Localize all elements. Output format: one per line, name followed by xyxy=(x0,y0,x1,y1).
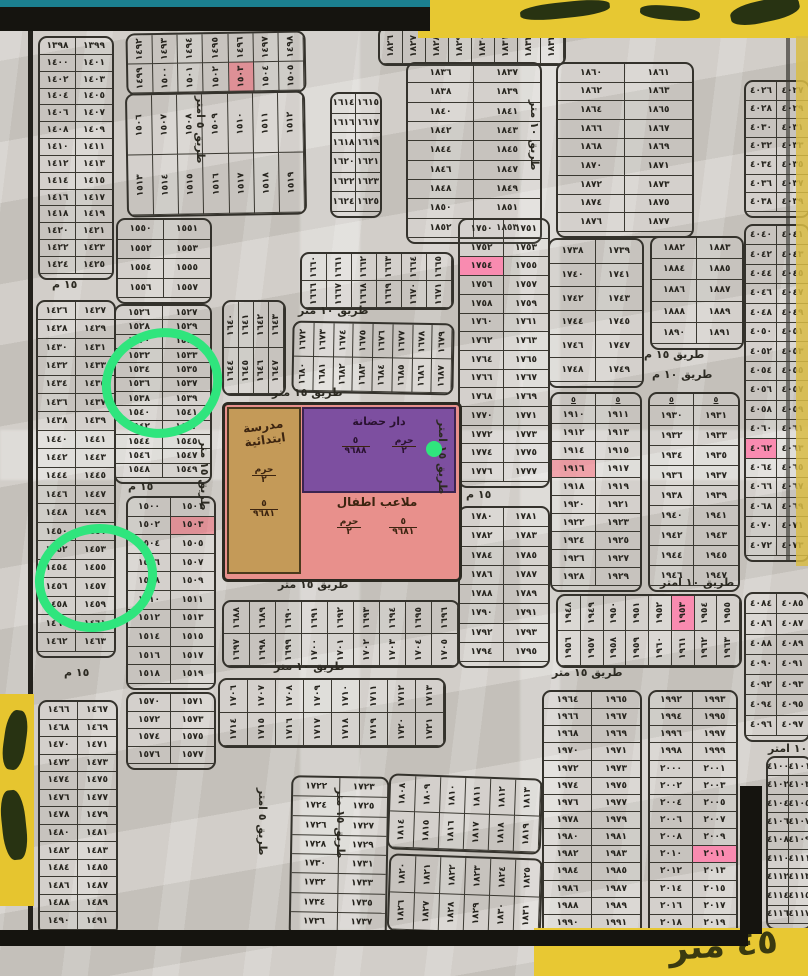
plot-cell: ٢٠١٠ xyxy=(650,846,693,863)
plot-block: ١٦٨٨١٦٨٩١٦٩٠١٦٩١١٦٩٢١٦٩٣١٦٩٤١٦٩٥١٦٩٦١٦٩٧… xyxy=(222,600,460,668)
plot-cell: ١٥١٠ xyxy=(128,591,171,610)
plot-cell: ١٦٧٧ xyxy=(393,324,413,358)
plot-cell: ١٤٤٤ xyxy=(38,468,76,486)
plot-cell: ١٩٨٥ xyxy=(592,863,640,880)
plot-cell: ١٧٥١ xyxy=(504,220,548,239)
plot-cell: ١٦١٧ xyxy=(356,114,380,134)
plot-cell: ١٧١١ xyxy=(360,680,388,713)
plot-cell: ١٥٣٩ xyxy=(163,392,210,406)
plot-cell: ١٩٩٣ xyxy=(693,692,736,709)
street-label: طريق ١٠ م xyxy=(652,368,712,381)
plot-cell: ١٦٩٨ xyxy=(250,634,276,666)
plot-cell: ١٦١٩ xyxy=(356,133,380,153)
plot-cap-cell: ٥ xyxy=(694,394,738,406)
plot-cell: ١٨٦٢ xyxy=(558,83,625,102)
plot-cell: ٤١١٥ xyxy=(789,887,808,905)
plot-cell: ١٧٧٧ xyxy=(504,463,548,482)
plot-cell: ١٤٦٢ xyxy=(38,633,76,651)
plot-cell: ١٦٤٢ xyxy=(254,302,269,348)
plot-block: ١٤٩٢١٤٩٣١٤٩٤١٤٩٥١٤٩٦١٤٩٧١٤٩٨١٤٩٩١٥٠٠١٥٠١… xyxy=(125,30,306,95)
plot-cell: ١٧٩٠ xyxy=(460,604,504,623)
school-fraction-2: ٥٩٦٨١ xyxy=(250,500,278,520)
plot-cell: ٤١١٦ xyxy=(768,906,789,924)
plot-cell: ١٥١١ xyxy=(253,93,279,153)
plot-cell: ١٨٧٦ xyxy=(558,213,625,232)
plot-cell: ١٩٤٥ xyxy=(694,546,738,566)
plot-cell: ١٨٣٨ xyxy=(408,83,474,102)
plot-cell: ١٩٦٩ xyxy=(592,726,640,743)
plot-cell: ١٦٦٥ xyxy=(427,254,452,281)
plot-cell: ١٧٥٣ xyxy=(504,239,548,258)
plot-cell: ٤٠٤٨ xyxy=(746,304,777,323)
nursery-block: دار حضانة حرم٢ ٥٩٦٨٨ xyxy=(302,407,456,493)
plot-cell: ١٥٢٧ xyxy=(163,306,210,320)
plot-cell: ١٥٠٧ xyxy=(171,554,214,573)
plot-cell: ٤١٠٩ xyxy=(789,832,808,850)
plot-cell: ١٨٤٠ xyxy=(408,103,474,122)
plot-cell: ١٩٦٧ xyxy=(592,709,640,726)
plot-cell: ١٧١٩ xyxy=(360,713,388,746)
plot-cell: ١٩٧٢ xyxy=(544,761,592,778)
plot-cell: ١٩٣٧ xyxy=(694,466,738,486)
plot-cell: ١٧٨١ xyxy=(504,508,548,527)
plot-cell: ١٤٧١ xyxy=(78,737,116,755)
plot-cell: ١٦٢١ xyxy=(356,153,380,173)
plot-cell: ١٥٤٤ xyxy=(116,435,163,449)
plot-cell: ١٩٢٩ xyxy=(596,568,640,586)
plot-cell: ١٥٤٣ xyxy=(163,421,210,435)
street-label: طريق ١٥ م xyxy=(644,348,704,361)
plot-cell: ١٥٠٦ xyxy=(128,554,171,573)
plot-cell: ١٥٠٦ xyxy=(127,95,153,155)
plot-cell: ١٩١٤ xyxy=(552,442,596,460)
plot-cell: ١٤٨٩ xyxy=(78,895,116,913)
plot-cell: ١٤٦٧ xyxy=(78,702,116,720)
plot-cell: ١٦٤١ xyxy=(239,302,254,348)
plot-cell: ١٥١٨ xyxy=(254,153,280,213)
street-label: طريق ١٠ متر xyxy=(274,660,345,673)
plot-cell: ١٥١٤ xyxy=(153,155,179,215)
plot-cell: ١٤٥٢ xyxy=(38,541,76,559)
plot-cell: ١٩٢٤ xyxy=(552,532,596,550)
plot-cell: ٢٠١٤ xyxy=(650,881,693,898)
plot-cell: ١٨٦٤ xyxy=(558,101,625,120)
plot-cell: ١٩٥٠ xyxy=(604,596,627,631)
plot-cell: ١٩٤٤ xyxy=(650,546,694,566)
plot-cell: ١٨٩١ xyxy=(697,323,742,344)
plot-cell: ١٤٣٢ xyxy=(38,357,76,375)
plot-block: ١٥٠٦١٥٠٧١٥٠٨١٥٠٩١٥١٠١٥١١١٥١٢١٥١٣١٥١٤١٥١٥… xyxy=(125,90,307,217)
plot-cell: ١٤٤٢ xyxy=(38,449,76,467)
plot-cell: ١٧٨٢ xyxy=(460,527,504,546)
plot-cell: ١٧٣٤ xyxy=(291,893,338,913)
plot-cell: ١٤٩٨ xyxy=(278,32,304,61)
plot-cell: ١٩٧١ xyxy=(592,743,640,760)
plot-cell: ٢٠٠٥ xyxy=(693,795,736,812)
plot-cell: ١٤٨٧ xyxy=(78,877,116,895)
plot-cell: ١٧٠٤ xyxy=(406,634,432,666)
plot-cell: ١٥١٦ xyxy=(128,647,171,666)
plot-cell: ١٤١٢ xyxy=(40,156,76,173)
plot-cell: ١٧٧٠ xyxy=(460,407,504,426)
plot-cell: ٤١٠٣ xyxy=(789,776,808,794)
plot-cell: ١٤٠١ xyxy=(76,55,112,72)
plot-block: ١٦٦٠١٦٦١١٦٦٢١٦٦٣١٦٦٤١٦٦٥١٦٦٦١٦٦٧١٦٦٨١٦٦٩… xyxy=(300,252,454,310)
plot-cell: ١٩٣١ xyxy=(694,406,738,426)
plot-cell: ٤٠٤٤ xyxy=(746,265,777,284)
plot-cell: ١٧٤٨ xyxy=(550,358,596,382)
plot-cell: ٤٠٤٢ xyxy=(746,245,777,264)
plot-cell: ٤٠٤٠ xyxy=(746,226,777,245)
plot-cell: ١٤٨٤ xyxy=(40,860,78,878)
plot-cell: ١٧٤٩ xyxy=(596,358,642,382)
plot-cell: ١٨٢٧ xyxy=(414,893,440,931)
plot-cell: ١٥٠٤ xyxy=(254,62,280,91)
plot-cell: ١٧٤٥ xyxy=(596,311,642,335)
plot-cell: ٤١١٧ xyxy=(789,906,808,924)
plot-cell: ١٧٥٠ xyxy=(460,220,504,239)
plot-cell: ١٥٧٣ xyxy=(171,712,214,730)
plot-cell: ٢٠٠٧ xyxy=(693,812,736,829)
plot-cell: ١٩٣٠ xyxy=(650,406,694,426)
plot-cell: ١٧٥٤ xyxy=(460,257,504,276)
plot-cell: ١٩٣٨ xyxy=(650,486,694,506)
plot-cell: ١٨٢٤ xyxy=(490,859,516,897)
plot-cell: ١٨١١ xyxy=(465,778,491,815)
plot-cell: ١٤٣٤ xyxy=(38,376,76,394)
plot-cell: ١٩٥٩ xyxy=(626,631,649,666)
plot-block: ١٦٧٢١٦٧٣١٦٧٤١٦٧٥١٦٧٦١٦٧٧١٦٧٨١٦٧٩١٦٨٠١٦٨١… xyxy=(291,321,454,396)
plot-cell: ١٨٢٢ xyxy=(440,857,466,895)
plot-cell: ٤٠٩١ xyxy=(777,655,808,675)
plot-cell: ١٤٨٢ xyxy=(40,842,78,860)
plot-cell: ١٦٤٠ xyxy=(224,302,239,348)
plot-cell: ١٤٣٣ xyxy=(76,357,114,375)
plot-cell: ٤١٠٠ xyxy=(768,758,789,776)
plot-cell: ١٥٢٩ xyxy=(163,320,210,334)
plot-cell: ١٦٤٣ xyxy=(269,302,284,348)
playground-block: ملاعب اطفال ٥٩٦٨١ حرم٢ xyxy=(302,493,452,570)
plot-cell: ١٥٥٢ xyxy=(118,240,164,260)
plot-cell: ١٤٩٠ xyxy=(40,912,78,930)
plot-cell: ١٩٤٣ xyxy=(694,526,738,546)
plot-cell: ١٩٩٨ xyxy=(650,743,693,760)
plot-cell: ١٤١٧ xyxy=(76,190,112,207)
plot-cell: ١٤٩٧ xyxy=(253,33,279,62)
plot-cell: ١٦٩٧ xyxy=(224,634,250,666)
plot-cell: ٤١٠٢ xyxy=(768,776,789,794)
plot-cell: ١٤٤٦ xyxy=(38,486,76,504)
plot-cell: ١٧٣٥ xyxy=(338,893,385,913)
plot-cell: ١٥١٩ xyxy=(171,665,214,684)
plot-cell: ١٤٥٣ xyxy=(76,541,114,559)
plot-cell: ١٧١٦ xyxy=(276,713,304,746)
plot-block: ١٤٦٦١٤٦٧١٤٦٨١٤٦٩١٤٧٠١٤٧١١٤٧٢١٤٧٣١٤٧٤١٤٧٥… xyxy=(38,700,118,936)
plot-cell: ١٧٤٠ xyxy=(550,264,596,288)
plot-cell: ١٤٠٤ xyxy=(40,89,76,106)
plot-cell: ١٦٩٥ xyxy=(406,602,432,634)
plot-cell: ١٨١٣ xyxy=(515,780,541,817)
plot-cell: ١٨٣٦ xyxy=(408,64,474,83)
plot-cell: ١٧١٢ xyxy=(388,680,416,713)
plot-cell: ١٦٨٨ xyxy=(224,602,250,634)
plot-cell: ١٧٦٧ xyxy=(504,370,548,389)
plot-cell: ١٥٤٨ xyxy=(116,464,163,478)
plot-cell: ١٩٨٩ xyxy=(592,898,640,915)
plot-cell: ١٨١٦ xyxy=(439,813,465,850)
plot-cell: ١٦٦٢ xyxy=(352,254,377,281)
plot-cell: ١٩١١ xyxy=(596,406,640,424)
plot-cell: ١٧٥٥ xyxy=(504,257,548,276)
plot-cell: ١٦٩٠ xyxy=(276,602,302,634)
plot-cell: ١٥٥٠ xyxy=(118,220,164,240)
plot-cell: ١٧١٤ xyxy=(220,713,248,746)
plot-cell: ١٩٩٥ xyxy=(693,709,736,726)
plot-cell: ١٩٥٦ xyxy=(558,631,581,666)
plot-cell: ١٤١٤ xyxy=(40,173,76,190)
plot-cell: ١٧٧٦ xyxy=(460,463,504,482)
plot-cell: ١٤١٣ xyxy=(76,156,112,173)
plot-cell: ١٥٠٢ xyxy=(203,63,229,92)
plot-cell: ١٩٣٤ xyxy=(650,446,694,466)
plot-cell: ١٩٧٦ xyxy=(544,795,592,812)
plot-cell: ٢٠٠١ xyxy=(693,761,736,778)
plot-cell: ١٨١٨ xyxy=(489,815,515,852)
plot-cell: ١٤٧٧ xyxy=(78,790,116,808)
plot-cell: ١٤٩٤ xyxy=(178,34,204,63)
plot-cell: ١٤٣٠ xyxy=(38,339,76,357)
plot-cell: ١٨٤٢ xyxy=(408,122,474,141)
plot-cell: ٢٠١٧ xyxy=(693,898,736,915)
plot-cell: ٤١٠٧ xyxy=(789,813,808,831)
plot-block: ١٨٠٨١٨٠٩١٨١٠١٨١١١٨١٢١٨١٣١٨١٤١٨١٥١٨١٦١٨١٧… xyxy=(387,773,544,854)
plot-cell: ١٧٠٣ xyxy=(380,634,406,666)
plot-cell: ١٤٠٥ xyxy=(76,89,112,106)
plot-cell: ١٧٠٢ xyxy=(354,634,380,666)
plot-cell: ١٩٧٩ xyxy=(592,812,640,829)
plot-block: ١٩٤٨١٩٤٩١٩٥٠١٩٥١١٩٥٢١٩٥٣١٩٥٤١٩٥٥١٩٥٦١٩٥٧… xyxy=(556,594,742,668)
plot-cell: ١٥١٦ xyxy=(203,154,229,214)
plot-block: ١٧٠٦١٧٠٧١٧٠٨١٧٠٩١٧١٠١٧١١١٧١٢١٧١٣١٧١٤١٧١٥… xyxy=(218,678,446,748)
plot-cell: ١٩٥٨ xyxy=(604,631,627,666)
plot-cell: ٤٠٩٤ xyxy=(746,695,777,715)
plot-cell: ١٩٢٧ xyxy=(596,550,640,568)
plot-cell: ١٧٦٢ xyxy=(460,332,504,351)
plot-cell: ١٧٠٥ xyxy=(432,634,458,666)
plot-cell: ١٥٥٤ xyxy=(118,259,164,279)
plot-cell: ١٤٢٨ xyxy=(38,320,76,338)
plot-block: ١٧٥٠١٧٥١١٧٥٢١٧٥٣١٧٥٤١٧٥٥١٧٥٦١٧٥٧١٧٥٨١٧٥٩… xyxy=(458,218,550,488)
street-label: ١٠ امتر xyxy=(768,742,807,755)
plot-cell: ١٧٣٠ xyxy=(292,854,339,874)
plot-cell: ١٨٦٦ xyxy=(558,120,625,139)
plot-cell: ٤٠٣٨ xyxy=(746,193,777,212)
plot-cell: ١٨٨٢ xyxy=(652,238,697,259)
plot-cell: ١٧١٨ xyxy=(332,713,360,746)
plot-cell: ٢٠١٦ xyxy=(650,898,693,915)
plot-cell: ١٤٧٩ xyxy=(78,807,116,825)
plot-cell: ١٩١٢ xyxy=(552,424,596,442)
playground-fraction-2: حرم٢ xyxy=(337,518,362,538)
plot-cell: ١٥٠٣ xyxy=(229,62,255,91)
plot-cell: ١٦٦٣ xyxy=(377,254,402,281)
street-label: طريق ٥ امتر xyxy=(256,788,269,856)
plot-cell: ١٧٦١ xyxy=(504,314,548,333)
plot-cell: ١٥٣٦ xyxy=(116,378,163,392)
plot-cell: ١٣٩٩ xyxy=(76,38,112,55)
plot-block: ٤١٠٠٤١٠١٤١٠٢٤١٠٣٤١٠٤٤١٠٥٤١٠٦٤١٠٧٤١٠٨٤١٠٩… xyxy=(766,756,808,930)
plot-cell: ١٥٠٤ xyxy=(128,535,171,554)
plot-cell: ٤٠٣٠ xyxy=(746,119,777,138)
plot-cell: ٤٠٩٢ xyxy=(746,675,777,695)
nursery-fraction-1: حرم٢ xyxy=(392,437,417,457)
plot-cell: ١٦٧٤ xyxy=(334,323,354,357)
plot-cell: ١٧٨٨ xyxy=(460,585,504,604)
plot-cell: ١٥٧٦ xyxy=(128,747,171,765)
plot-cell: ١٦٨٩ xyxy=(250,602,276,634)
plot-cell: ١٨٢١ xyxy=(415,856,441,894)
plot-cell: ١٤٧٨ xyxy=(40,807,78,825)
plot-cell: ٤٠٨٤ xyxy=(746,594,777,614)
street-label: ١٥ م xyxy=(466,488,491,501)
plot-cell: ١٤٥٤ xyxy=(38,560,76,578)
plot-cell: ١٨٨٨ xyxy=(652,302,697,323)
plot-cell: ١٨٧٤ xyxy=(558,195,625,214)
plot-cell: ١٤٢٠ xyxy=(40,223,76,240)
plot-cell: ١٤٦٩ xyxy=(78,720,116,738)
plot-cell: ١٩٨٣ xyxy=(592,846,640,863)
plot-cell: ٤٠٨٧ xyxy=(777,614,808,634)
plot-cell: ١٤٥٥ xyxy=(76,560,114,578)
plot-cell: ١٤٨١ xyxy=(78,825,116,843)
plot-cell: ٤١١٤ xyxy=(768,887,789,905)
plot-cell: ١٩٥٣ xyxy=(672,596,695,631)
plot-cell: ١٩٥٢ xyxy=(649,596,672,631)
plot-cell: ١٤٤٨ xyxy=(38,504,76,522)
plot-cell: ١٩٢٠ xyxy=(552,496,596,514)
plot-cell: ٢٠٠٩ xyxy=(693,829,736,846)
plot-cell: ١٥٠٨ xyxy=(128,572,171,591)
plot-cell: ١٩٨٤ xyxy=(544,863,592,880)
plot-block: ٥٥١٩٣٠١٩٣١١٩٣٢١٩٣٣١٩٣٤١٩٣٥١٩٣٦١٩٣٧١٩٣٨١٩… xyxy=(648,392,740,592)
plot-cell: ١٨٢٦ xyxy=(389,892,415,930)
plot-cell: ٤٠٣٤ xyxy=(746,156,777,175)
plot-cell: ١٨٢٨ xyxy=(439,894,465,932)
plot-cell: ٢٠٠٦ xyxy=(650,812,693,829)
plot-block: ١٥٥٠١٥٥١١٥٥٢١٥٥٣١٥٥٤١٥٥٥١٥٥٦١٥٥٧ xyxy=(116,218,212,304)
plot-cell: ١٤٧٣ xyxy=(78,755,116,773)
plot-cell: ١٧٢٨ xyxy=(292,835,339,855)
plot-cell: ٤١١٣ xyxy=(789,869,808,887)
nursery-name: دار حضانة xyxy=(304,415,454,428)
plot-cell: ٤٠٥٠ xyxy=(746,323,777,342)
plot-cell: ١٧٩٣ xyxy=(504,624,548,643)
plot-cell: ١٥٧٥ xyxy=(171,729,214,747)
plot-cell: ١٤٢٢ xyxy=(40,240,76,257)
plot-cell: ١٤٠٠ xyxy=(40,55,76,72)
plot-cell: ١٦١٦ xyxy=(332,114,356,134)
plot-cell: ١٩٣٢ xyxy=(650,426,694,446)
plot-cell: ١٩٩٢ xyxy=(650,692,693,709)
plot-cell: ١٨٠٩ xyxy=(415,776,441,813)
plot-cell: ١٦٨٧ xyxy=(432,359,452,393)
plot-cell: ١٧٧٢ xyxy=(460,426,504,445)
plot-cell: ١٧٠٧ xyxy=(248,680,276,713)
plot-cell: ١٥٣٨ xyxy=(116,392,163,406)
plot-cell: ١٨٢٣ xyxy=(465,858,491,896)
plot-cell: ١٨١٤ xyxy=(389,811,415,848)
plot-cell: ١٤٠٩ xyxy=(76,122,112,139)
plot-cell: ١٦٢٣ xyxy=(356,173,380,193)
plot-block: ١٧٣٨١٧٣٩١٧٤٠١٧٤١١٧٤٢١٧٤٣١٧٤٤١٧٤٥١٧٤٦١٧٤٧… xyxy=(548,238,644,388)
plot-cell: ١٥٧٢ xyxy=(128,712,171,730)
plot-cell: ١٤١٠ xyxy=(40,139,76,156)
plot-cell: ١٥٧٤ xyxy=(128,729,171,747)
plot-cell: ١٨٥١ xyxy=(474,199,540,218)
plot-cell: ١٥١٧ xyxy=(171,647,214,666)
plot-cell: ١٤٢٩ xyxy=(76,320,114,338)
plot-cell: ١٥٠١ xyxy=(178,63,204,92)
plot-cell: ١٦٤٦ xyxy=(254,348,269,394)
plot-cell: ١٤٦٨ xyxy=(40,720,78,738)
plot-cell: ١٥١٧ xyxy=(229,153,255,213)
plot-cell: ١٦٧٨ xyxy=(412,325,432,359)
plot-cell: ١٧١٥ xyxy=(248,713,276,746)
plot-cell: ١٤٨٨ xyxy=(40,895,78,913)
plot-cell: ١٧٨٥ xyxy=(504,547,548,566)
plot-cell: ١٥١٠ xyxy=(228,93,254,153)
plot-cell: ١٥٣٠ xyxy=(116,335,163,349)
plot-cell: ١٣٩٨ xyxy=(40,38,76,55)
plot-cell: ١٤١٨ xyxy=(40,206,76,223)
plot-cell: ١٤٤١ xyxy=(76,431,114,449)
plot-cell: ١٥٠٣ xyxy=(171,517,214,536)
plot-cell: ١٥٤١ xyxy=(163,406,210,420)
plot-cell: ١٤٧٦ xyxy=(40,790,78,808)
street-label: طريق ١٠ متر xyxy=(298,304,369,317)
plot-cell: ١٤٠٧ xyxy=(76,105,112,122)
plot-cell: ١٩٢٢ xyxy=(552,514,596,532)
plot-cell: ٤١٠٥ xyxy=(789,795,808,813)
plot-cell: ١٤٦٦ xyxy=(40,702,78,720)
plot-cell: ١٤٩٣ xyxy=(153,35,179,64)
plot-cell: ١٦١٤ xyxy=(332,94,356,114)
plot-cell: ١٩٧٨ xyxy=(544,812,592,829)
plot-cell: ١٩١٩ xyxy=(596,478,640,496)
plot-cell: ٤١٠٤ xyxy=(768,795,789,813)
plot-cell: ١٧٧٤ xyxy=(460,444,504,463)
bottom-black-bar xyxy=(0,930,748,946)
plot-cell: ١٨٢٠ xyxy=(390,855,416,893)
plot-cell: ١٥١١ xyxy=(171,591,214,610)
plot-cell: ١٥٧١ xyxy=(171,694,214,712)
plot-cell: ١٧٣٢ xyxy=(291,873,338,893)
plot-cell: ١٥٣٢ xyxy=(116,349,163,363)
plot-cell: ١٦٤٥ xyxy=(239,348,254,394)
plot-cell: ١٦٢٤ xyxy=(332,192,356,212)
plot-cell: ١٧٨٧ xyxy=(504,566,548,585)
plot-cell: ١٧٠٩ xyxy=(304,680,332,713)
plot-cell: ١٥١٩ xyxy=(279,152,305,212)
plot-cell: ١٩٨٠ xyxy=(544,829,592,846)
plot-cell: ١٤٣٨ xyxy=(38,412,76,430)
plot-cell: ٤٠٩٣ xyxy=(777,675,808,695)
plot-cell: ١٤٣٦ xyxy=(38,394,76,412)
plot-cell: ١٥٥٦ xyxy=(118,279,164,299)
plot-cell: ١٧٢٤ xyxy=(293,796,340,816)
plot-cell: ١٦٨٦ xyxy=(412,359,432,393)
plot-cell: ٤١٠٨ xyxy=(768,832,789,850)
